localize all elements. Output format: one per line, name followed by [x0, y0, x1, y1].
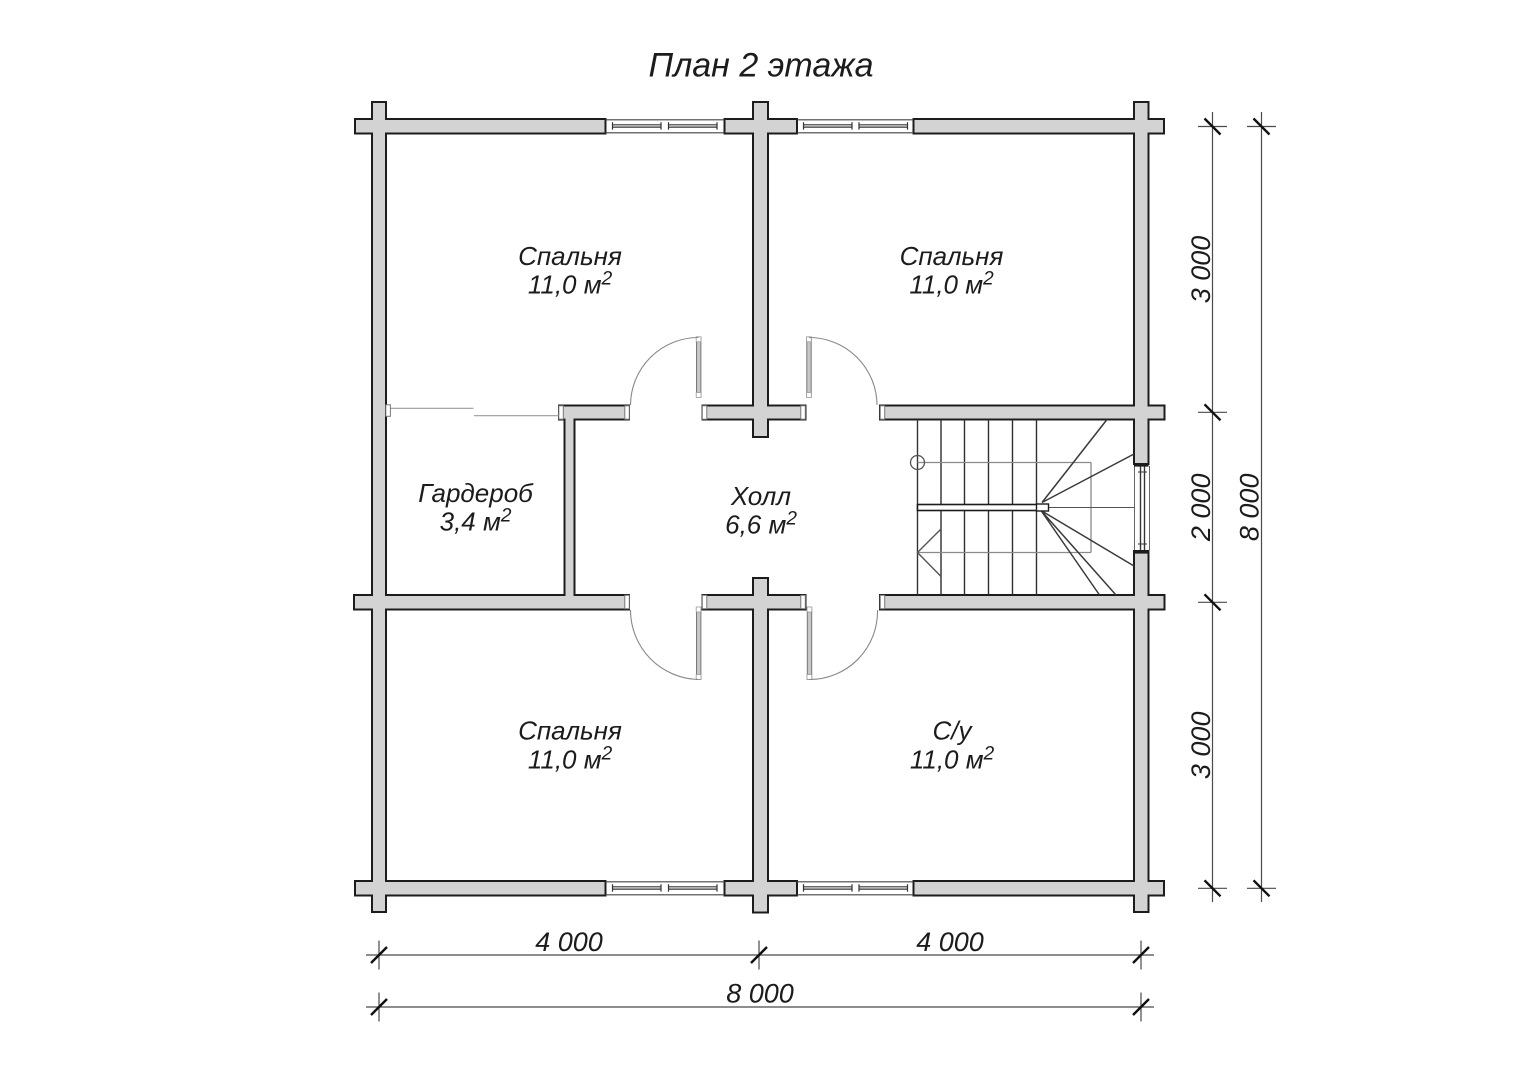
svg-text:План 2 этажа: План 2 этажа: [648, 47, 873, 85]
svg-text:Спальня: Спальня: [518, 716, 622, 746]
svg-text:4 000: 4 000: [916, 927, 984, 957]
svg-text:3 000: 3 000: [1186, 712, 1216, 780]
svg-text:3,4 м2: 3,4 м2: [440, 506, 512, 537]
svg-text:Гардероб: Гардероб: [418, 478, 534, 508]
svg-text:8 000: 8 000: [1235, 474, 1265, 542]
svg-text:С/у: С/у: [933, 716, 974, 746]
svg-text:11,0 м2: 11,0 м2: [528, 269, 613, 300]
svg-text:Спальня: Спальня: [518, 241, 622, 271]
svg-text:4 000: 4 000: [535, 927, 603, 957]
svg-text:Холл: Холл: [730, 481, 791, 511]
svg-text:11,0 м2: 11,0 м2: [528, 743, 613, 774]
svg-text:Спальня: Спальня: [900, 241, 1004, 271]
svg-text:3 000: 3 000: [1186, 236, 1216, 304]
svg-text:6,6 м2: 6,6 м2: [725, 509, 797, 540]
svg-text:11,0 м2: 11,0 м2: [909, 269, 994, 300]
svg-text:2 000: 2 000: [1186, 474, 1216, 543]
svg-text:8 000: 8 000: [726, 979, 794, 1009]
svg-text:11,0 м2: 11,0 м2: [910, 743, 995, 774]
